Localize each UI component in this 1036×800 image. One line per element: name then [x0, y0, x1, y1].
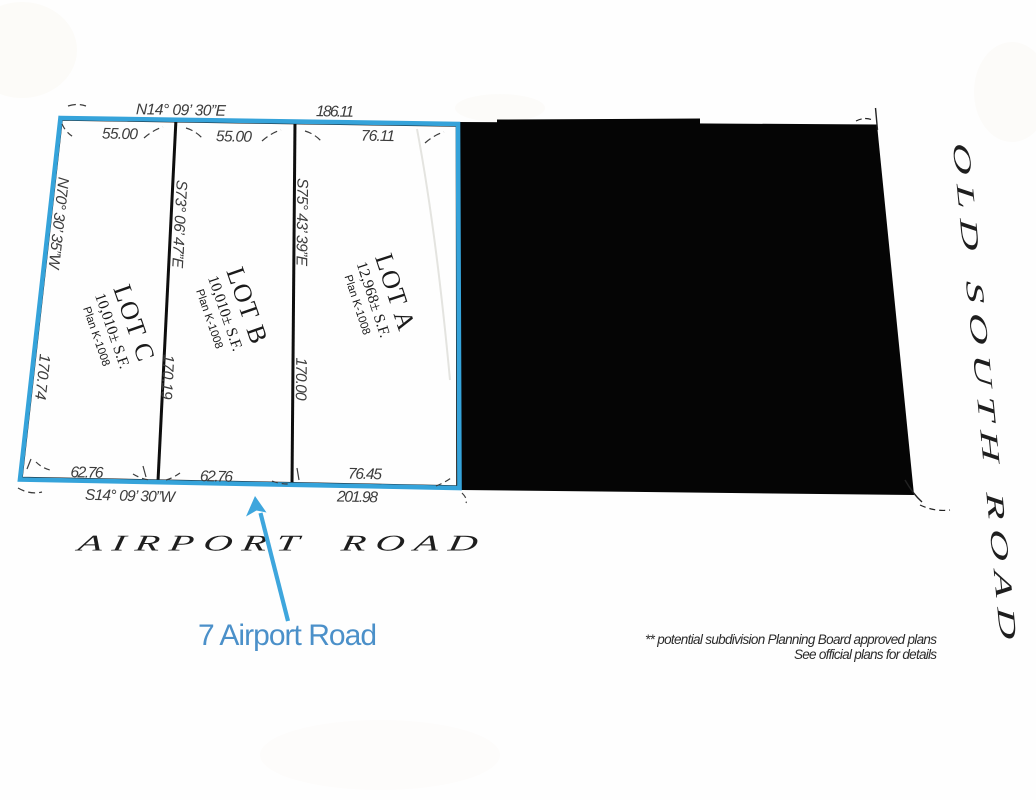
svg-text:See official plans for details: See official plans for details: [794, 647, 937, 662]
svg-text:76.11: 76.11: [361, 128, 395, 146]
svg-text:62.76: 62.76: [200, 468, 234, 486]
svg-text:76.45: 76.45: [348, 466, 383, 484]
svg-text:55.00: 55.00: [216, 128, 253, 146]
svg-text:N14° 09’ 30”E: N14° 09’ 30”E: [136, 101, 227, 120]
svg-text:** potential subdivision Plann: ** potential subdivision Planning Board …: [645, 632, 937, 647]
svg-text:AIRPORT ROAD: AIRPORT ROAD: [74, 531, 487, 556]
svg-text:7 Airport Road: 7 Airport Road: [198, 619, 377, 652]
svg-text:201.98: 201.98: [336, 488, 379, 506]
svg-text:S14° 09’ 30”W: S14° 09’ 30”W: [85, 487, 177, 506]
svg-text:186.11: 186.11: [316, 103, 354, 121]
svg-text:S75° 43’ 39”E: S75° 43’ 39”E: [293, 178, 311, 267]
svg-text:170.19: 170.19: [157, 354, 176, 400]
svg-text:62.76: 62.76: [70, 464, 104, 482]
svg-text:55.00: 55.00: [102, 125, 139, 143]
svg-text:170.00: 170.00: [292, 357, 309, 401]
